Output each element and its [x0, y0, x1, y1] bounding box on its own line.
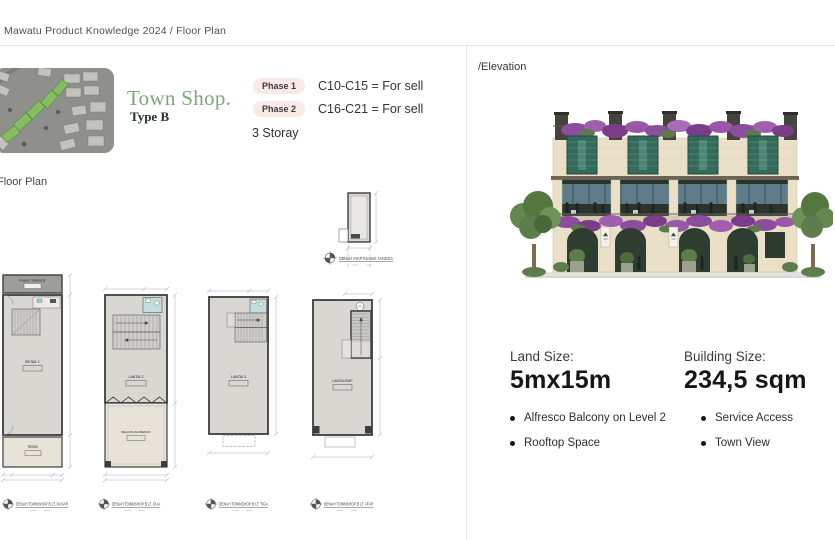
room-label-retail-1: RETAIL 1	[25, 360, 40, 364]
room-label-lantai-2: LANTAI 2	[129, 375, 144, 379]
phase-2-row: Phase 2 C16-C21 = For sell	[253, 101, 423, 117]
caption-lt-atap: DENAH TOWNSHOP B LT. ATAP	[324, 502, 373, 507]
right-tree	[792, 192, 833, 277]
compass-icon	[2, 498, 14, 510]
building-size-spec: Building Size: 234,5 sqm	[684, 349, 807, 395]
storey-count: 3 Storay	[252, 126, 299, 140]
arch-banner	[669, 227, 678, 247]
phase-1-badge: Phase 1	[253, 78, 305, 94]
plan-lt-atap: LANTAI ATAP	[311, 292, 382, 459]
elevation-rendering	[503, 100, 833, 285]
feature-item: Service Access	[701, 412, 793, 424]
feature-list-left: Alfresco Balcony on Level 2 Rooftop Spac…	[510, 412, 666, 449]
bullet-dot	[510, 441, 515, 446]
room-label-lantai-atap: LANTAI ATAP	[332, 379, 353, 383]
plan-lt-dasar: PUBLIC TERRACE RETAIL 1 TERAS	[1, 273, 72, 482]
feature-item: Rooftop Space	[510, 437, 666, 449]
compass-icon	[205, 498, 217, 510]
stair-roof-caption-text: DENAH ATAP RUANG TANGGA	[339, 256, 393, 261]
top-divider	[0, 45, 835, 46]
phase-2-units: C16-C21 = For sell	[318, 102, 423, 116]
compass-icon	[310, 498, 322, 510]
phase-1-units: C10-C15 = For sell	[318, 79, 423, 93]
phase-2-badge: Phase 2	[253, 101, 305, 117]
phase-1-row: Phase 1 C10-C15 = For sell	[253, 78, 423, 94]
land-size-value: 5mx15m	[510, 366, 611, 395]
room-label-teras: TERAS	[27, 445, 38, 449]
bullet-dot	[510, 416, 515, 421]
site-map-thumbnail	[0, 68, 114, 153]
breadcrumb: Mawatu Product Knowledge 2024 / Floor Pl…	[4, 25, 226, 37]
bullet-dot	[701, 441, 706, 446]
feature-text: Alfresco Balcony on Level 2	[524, 412, 666, 424]
arch-banner	[601, 227, 610, 247]
plan-lt-dua: LANTAI 2 BALKON ALFRESCO	[103, 287, 177, 482]
land-size-spec: Land Size: 5mx15m	[510, 349, 611, 395]
caption-lt-dasar: DENAH TOWNSHOP B LT. DASAR	[16, 502, 68, 507]
compass-icon	[98, 498, 110, 510]
room-label-lantai-3: LANTAI 3	[231, 375, 246, 379]
land-size-label: Land Size:	[510, 349, 611, 364]
room-label-public-terrace: PUBLIC TERRACE	[20, 279, 46, 283]
site-map-image	[0, 68, 114, 153]
caption-lt-tiga: DENAH TOWNSHOP B LT. TIGA	[219, 502, 268, 507]
building-size-value: 234,5 sqm	[684, 366, 807, 395]
product-title: Town Shop.	[127, 86, 231, 111]
elevation-section-label: /Elevation	[478, 61, 526, 73]
building-size-label: Building Size:	[684, 349, 807, 364]
plan-lt-tiga: LANTAI 3	[207, 289, 278, 455]
floor-plan-section-label: Floor Plan	[0, 176, 47, 188]
feature-text: Service Access	[715, 412, 793, 424]
bullet-dot	[701, 416, 706, 421]
feature-text: Rooftop Space	[524, 437, 600, 449]
feature-item: Town View	[701, 437, 793, 449]
balcony-level	[551, 180, 799, 220]
room-label-balkon-alfresco: BALKON ALFRESCO	[121, 430, 151, 434]
rooftop-flowers	[561, 120, 794, 138]
plan-captions: DENAH TOWNSHOP B LT. DASAR DENAH TOWNSHO…	[2, 498, 373, 511]
panel-divider	[466, 46, 467, 540]
feature-text: Town View	[715, 437, 770, 449]
caption-lt-dua: DENAH TOWNSHOP B LT. DUA	[112, 502, 160, 507]
product-subtitle: Type B	[130, 109, 169, 125]
feature-list-right: Service Access Town View	[701, 412, 793, 449]
feature-item: Alfresco Balcony on Level 2	[510, 412, 666, 424]
slide-root: Mawatu Product Knowledge 2024 / Floor Pl…	[0, 0, 835, 540]
stair-roof-caption: DENAH ATAP RUANG TANGGA	[324, 252, 394, 266]
floor-plan-drawings: DENAH ATAP RUANG TANGGA PUBLIC TERRACE R…	[0, 190, 460, 530]
